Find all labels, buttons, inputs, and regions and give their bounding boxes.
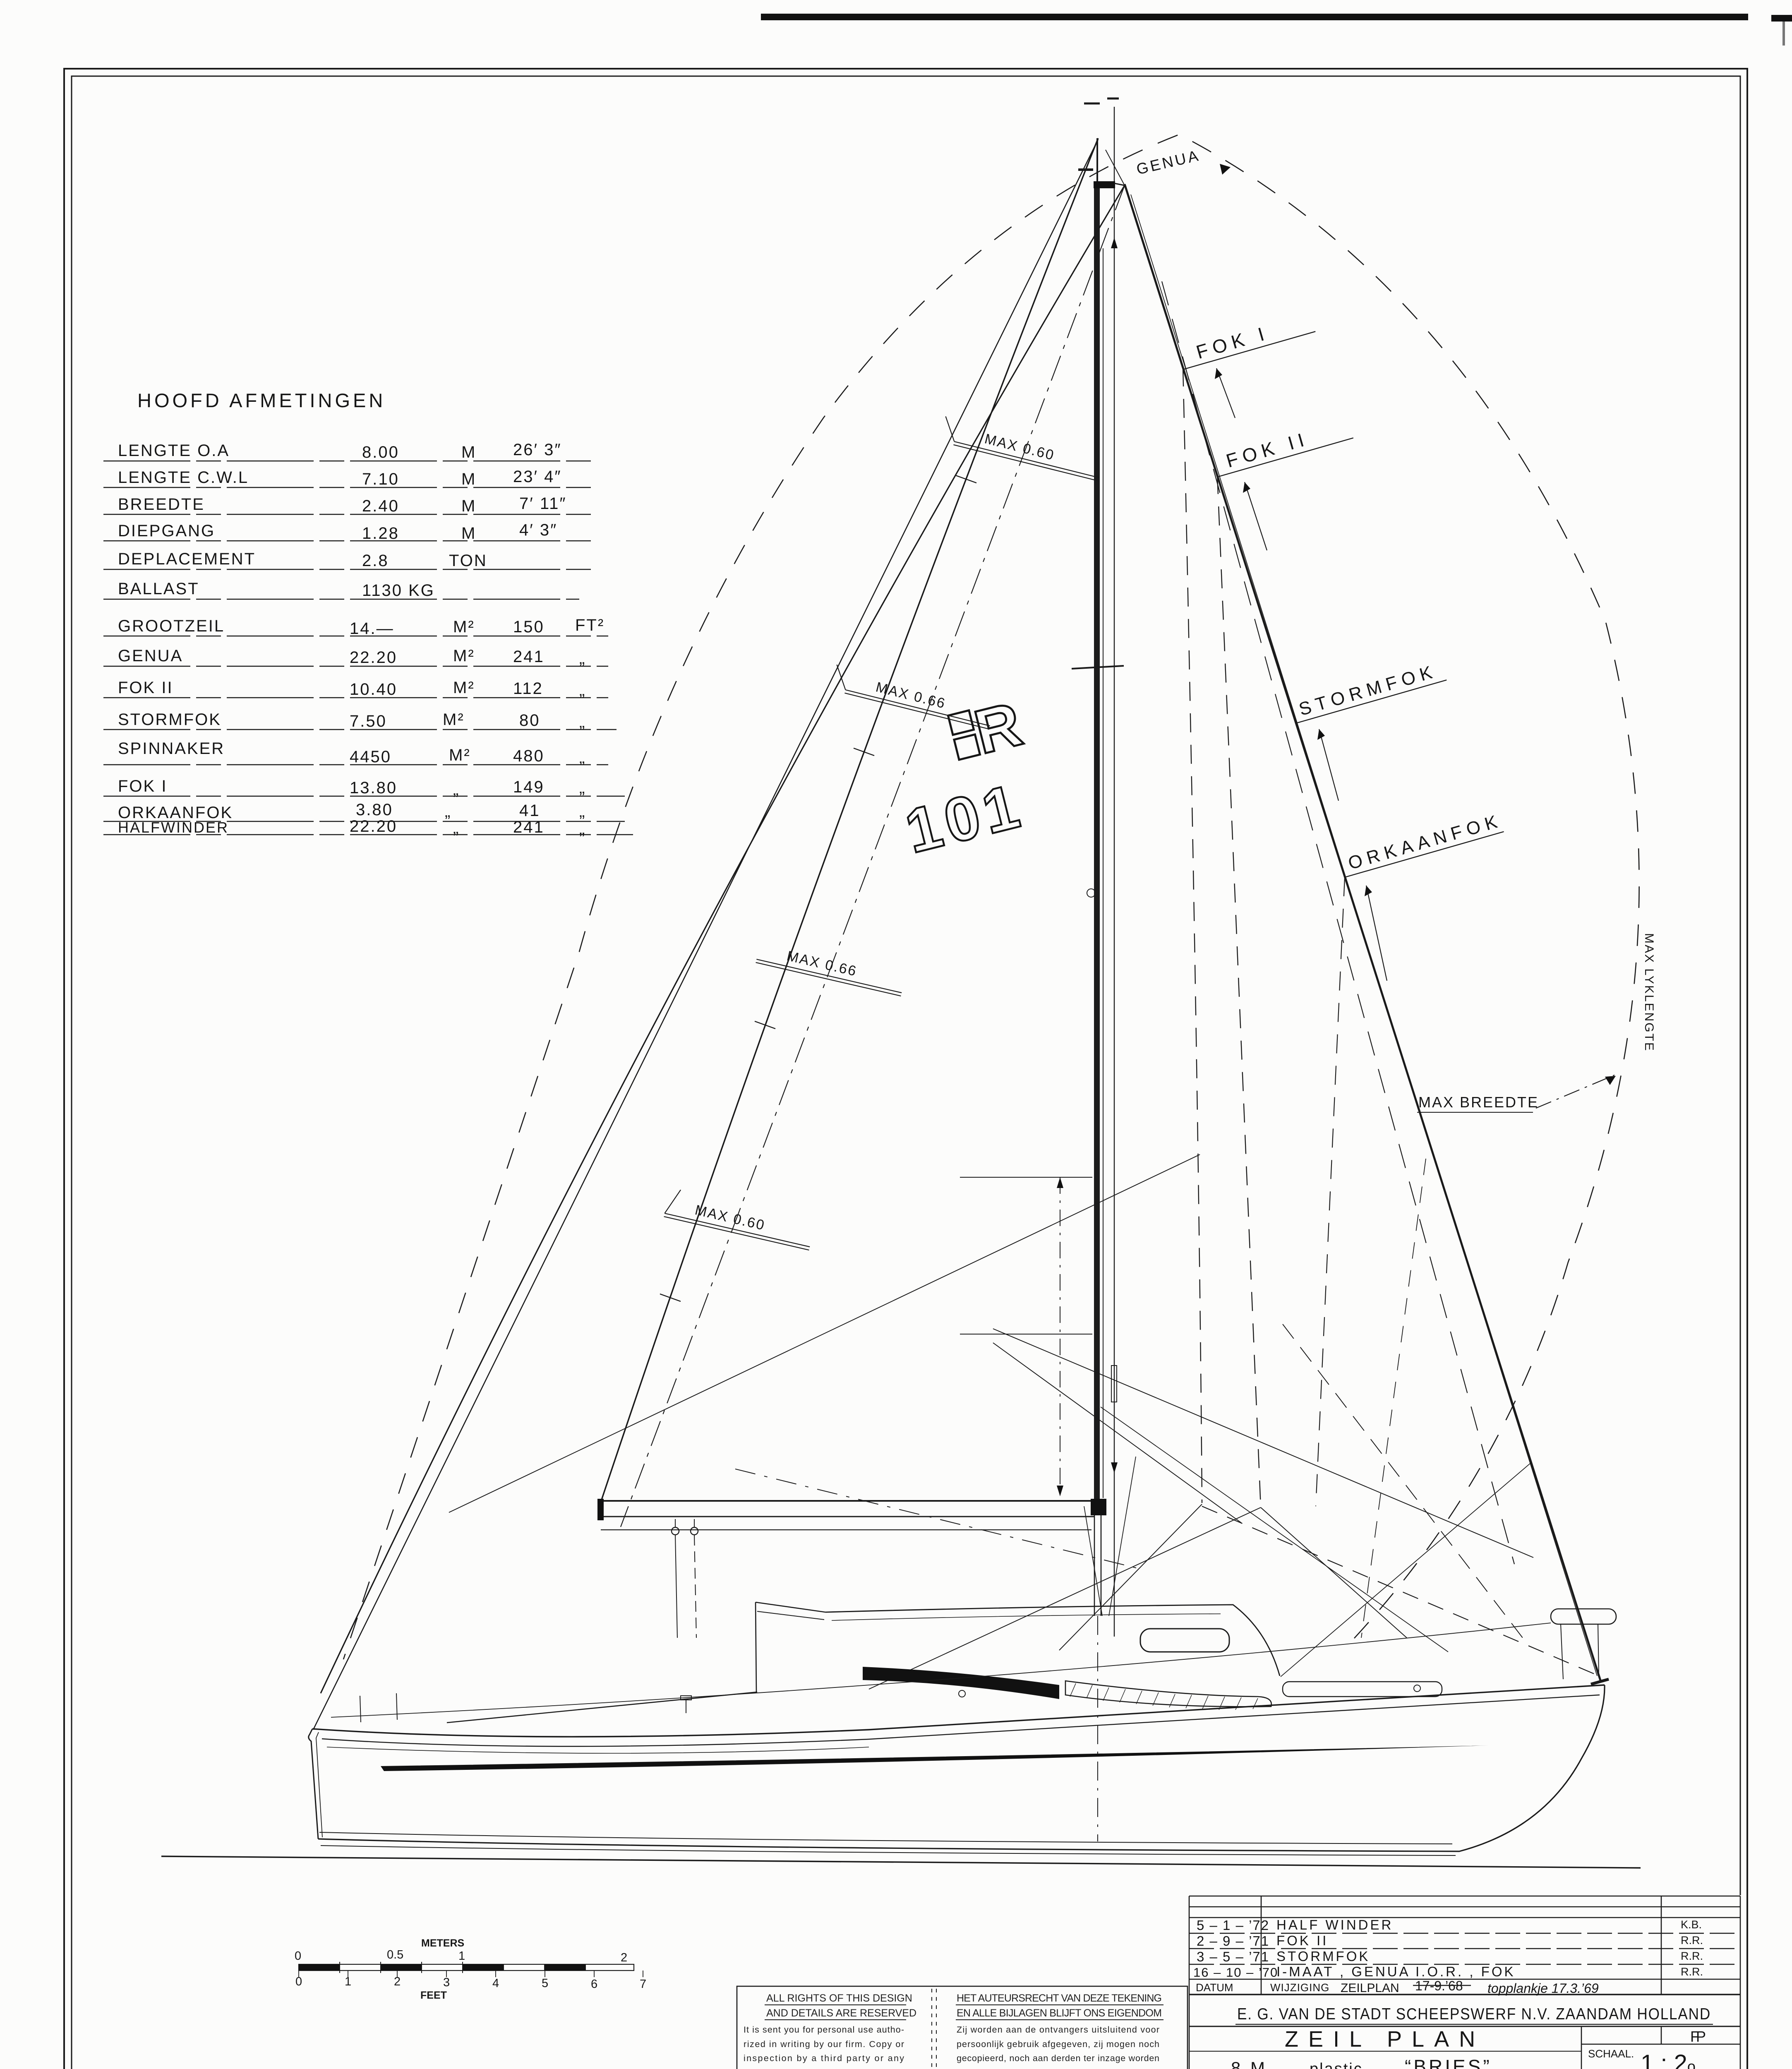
svg-text:0: 0 — [295, 1949, 301, 1963]
svg-text:K.B.: K.B. — [1681, 1918, 1702, 1931]
svg-text:8.00: 8.00 — [362, 443, 399, 461]
svg-text:gecopieerd, noch aan derden te: gecopieerd, noch aan derden ter inzage w… — [957, 2053, 1159, 2063]
svg-text:M: M — [461, 470, 476, 488]
svg-text:GENUA: GENUA — [118, 647, 183, 665]
svg-text:„: „ — [579, 713, 586, 731]
svg-text:6: 6 — [591, 1978, 597, 1991]
svg-text:1: 1 — [458, 1949, 465, 1963]
svg-text:STORMFOK: STORMFOK — [118, 710, 221, 729]
svg-text:It is sent you for personal us: It is sent you for personal use autho- — [744, 2025, 904, 2035]
svg-text:150: 150 — [513, 618, 545, 636]
svg-text:2: 2 — [394, 1975, 401, 1988]
svg-text:DIEPGANG: DIEPGANG — [118, 522, 215, 540]
svg-text:DEPLACEMENT: DEPLACEMENT — [118, 550, 256, 568]
svg-text:“BRIES”: “BRIES” — [1405, 2056, 1492, 2069]
svg-text:1130 KG: 1130 KG — [362, 581, 435, 600]
svg-text:FOK II: FOK II — [1276, 1933, 1328, 1948]
svg-text:ZEIL PLAN: ZEIL PLAN — [1285, 2027, 1485, 2052]
svg-text:ZEILPLAN: ZEILPLAN — [1341, 1981, 1399, 1995]
svg-text:13.80: 13.80 — [350, 779, 397, 797]
svg-text:„: „ — [579, 649, 586, 667]
svg-text:E. G. VAN DE STADT SCHEEPSWERF: E. G. VAN DE STADT SCHEEPSWERF N.V. ZAAN… — [1237, 2005, 1711, 2023]
svg-text:I-MAAT , GENUA I.O.R. , FOK: I-MAAT , GENUA I.O.R. , FOK — [1276, 1964, 1516, 1979]
svg-text:TON: TON — [449, 552, 487, 570]
svg-text:FT²: FT² — [575, 616, 605, 634]
svg-text:M: M — [461, 443, 476, 461]
svg-text:3.80: 3.80 — [356, 801, 393, 819]
svg-text:AND DETAILS ARE RESERVED: AND DETAILS ARE RESERVED — [766, 2007, 916, 2019]
svg-text:1.28: 1.28 — [362, 524, 399, 542]
svg-text:plastic: plastic — [1310, 2060, 1363, 2069]
svg-text:3 – 5 – ’71: 3 – 5 – ’71 — [1197, 1949, 1269, 1964]
svg-text:ALL RIGHTS OF THIS DESIGN: ALL RIGHTS OF THIS DESIGN — [766, 1992, 912, 2004]
svg-text:241: 241 — [513, 648, 545, 666]
svg-text:22.20: 22.20 — [350, 817, 397, 835]
svg-text:8 M.: 8 M. — [1231, 2058, 1275, 2069]
svg-text:METERS: METERS — [421, 1937, 464, 1949]
svg-text:M: M — [461, 497, 476, 515]
svg-text:M²: M² — [453, 647, 475, 665]
svg-text:1: 1 — [345, 1975, 351, 1988]
svg-text:7.10: 7.10 — [362, 470, 399, 488]
svg-text:3: 3 — [443, 1976, 450, 1989]
svg-text:R.R.: R.R. — [1681, 1934, 1703, 1947]
svg-text:FOK I: FOK I — [118, 777, 167, 795]
svg-text:MAX BREEDTE: MAX BREEDTE — [1418, 1094, 1539, 1111]
svg-text:4: 4 — [492, 1977, 499, 1990]
svg-text:0: 0 — [295, 1975, 302, 1988]
svg-text:persoonlijk gebruik afgegeven,: persoonlijk gebruik afgegeven, zij mogen… — [957, 2039, 1159, 2049]
svg-text:112: 112 — [513, 679, 543, 698]
svg-text:26′ 3″: 26′ 3″ — [513, 441, 562, 459]
svg-text:BALLAST: BALLAST — [118, 580, 199, 598]
svg-text:„: „ — [445, 802, 451, 821]
svg-text:MAX LYKLENGTE: MAX LYKLENGTE — [1642, 933, 1656, 1052]
svg-text:41: 41 — [519, 802, 540, 820]
svg-text:14.—: 14.— — [350, 619, 394, 638]
svg-text:2: 2 — [621, 1951, 627, 1964]
svg-text:„: „ — [579, 779, 586, 797]
svg-text:10.40: 10.40 — [350, 680, 397, 698]
svg-text:R.R.: R.R. — [1681, 1950, 1703, 1962]
svg-text:HOOFD AFMETINGEN: HOOFD AFMETINGEN — [137, 389, 386, 411]
svg-text:2 – 9 – ’71: 2 – 9 – ’71 — [1197, 1933, 1269, 1949]
svg-text:BREEDTE: BREEDTE — [118, 495, 205, 514]
svg-text:M: M — [461, 524, 476, 542]
svg-text:M²: M² — [449, 746, 471, 764]
svg-text:7′ 11″: 7′ 11″ — [519, 494, 567, 513]
svg-text:EN ALLE BIJLAGEN BLIJFT ONS EI: EN ALLE BIJLAGEN BLIJFT ONS EIGENDOM — [957, 2007, 1162, 2019]
svg-text:„: „ — [579, 681, 586, 699]
svg-text:241: 241 — [513, 818, 545, 836]
svg-text:23′ 4″: 23′ 4″ — [513, 468, 562, 486]
svg-text:„: „ — [579, 802, 586, 821]
svg-text:2.8: 2.8 — [362, 552, 389, 570]
svg-text:R.R.: R.R. — [1681, 1966, 1703, 1978]
svg-text:WIJZIGING: WIJZIGING — [1270, 1981, 1329, 1994]
svg-text:149: 149 — [513, 778, 545, 796]
svg-text:„: „ — [579, 820, 586, 838]
svg-text:4450: 4450 — [350, 748, 391, 766]
svg-text:FOK II: FOK II — [118, 679, 173, 697]
svg-text:LENGTE O.A: LENGTE O.A — [118, 442, 230, 460]
svg-text:topplankje 17.3.’69: topplankje 17.3.’69 — [1487, 1981, 1599, 1996]
svg-text:SPINNAKER: SPINNAKER — [118, 739, 225, 758]
svg-text:STORMFOK: STORMFOK — [1276, 1949, 1370, 1964]
svg-text:GROOTZEIL: GROOTZEIL — [118, 617, 225, 635]
svg-text:5 – 1 – ’72: 5 – 1 – ’72 — [1197, 1918, 1269, 1933]
svg-text:4′ 3″: 4′ 3″ — [519, 521, 557, 539]
svg-text:7.50: 7.50 — [350, 712, 387, 730]
svg-text:80: 80 — [519, 711, 540, 730]
svg-text:FEET: FEET — [420, 1990, 447, 2001]
svg-text:16 – 10 – ’70: 16 – 10 – ’70 — [1193, 1965, 1278, 1980]
svg-text:5: 5 — [542, 1977, 548, 1990]
svg-text:HALF WINDER: HALF WINDER — [1276, 1917, 1393, 1932]
svg-text:22.20: 22.20 — [350, 648, 397, 667]
svg-text:„: „ — [579, 749, 586, 767]
svg-text:M²: M² — [443, 710, 465, 729]
svg-text:480: 480 — [513, 747, 545, 765]
svg-text:0.5: 0.5 — [387, 1948, 403, 1961]
svg-text:SCHAAL.: SCHAAL. — [1588, 2047, 1634, 2060]
svg-text:M²: M² — [453, 679, 475, 697]
svg-text:DATUM: DATUM — [1196, 1981, 1233, 1994]
svg-text:Zij worden aan de ontvangers u: Zij worden aan de ontvangers uitsluitend… — [957, 2025, 1159, 2035]
svg-text:HET AUTEURSRECHT VAN DEZE TEKE: HET AUTEURSRECHT VAN DEZE TEKENING — [957, 1992, 1162, 2004]
svg-text:2.40: 2.40 — [362, 497, 399, 515]
svg-text:M²: M² — [453, 618, 475, 636]
svg-text:LENGTE C.W.L: LENGTE C.W.L — [118, 468, 249, 487]
svg-text:7: 7 — [640, 1978, 646, 1991]
